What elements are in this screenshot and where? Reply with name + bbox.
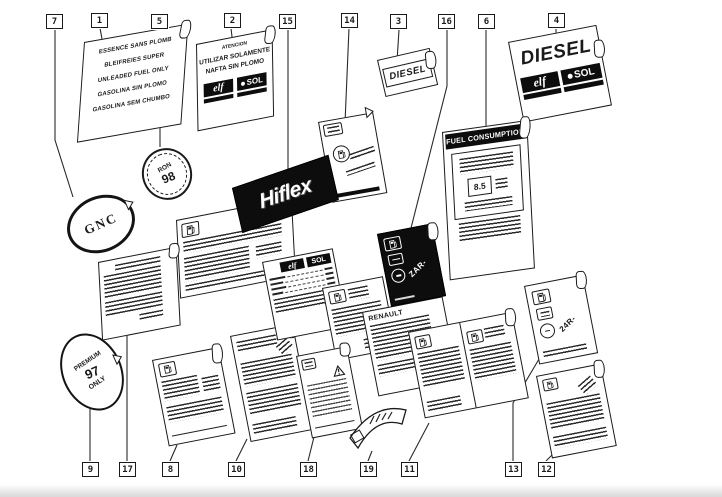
code-text-lines xyxy=(348,285,370,301)
callout-4: 4 xyxy=(548,13,565,28)
text-lines xyxy=(417,346,465,387)
fuel-pump-icon xyxy=(470,331,480,342)
text-lines xyxy=(346,162,376,176)
callout-3: 3 xyxy=(390,14,407,29)
code-text-lines xyxy=(139,309,163,320)
code-text-lines xyxy=(578,376,598,396)
fuel-pump-box xyxy=(542,377,559,392)
page-curl-decoration xyxy=(211,343,223,364)
warning-triangle-icon xyxy=(332,364,346,377)
fuel-pump-icon xyxy=(333,291,343,302)
text-lines xyxy=(546,393,604,429)
label-curved-ribbon xyxy=(344,398,410,452)
corner-flag-decoration xyxy=(364,105,375,118)
footer-micro-text xyxy=(395,295,415,301)
page-curl-decoration xyxy=(593,39,605,58)
label-fuel-consumption: FUEL CONSUMPTION 8.5 xyxy=(442,120,535,280)
text-lines xyxy=(495,177,507,189)
fuel-pump-box xyxy=(414,334,432,350)
callout-19: 19 xyxy=(360,462,377,477)
sol-logo-text: SOL xyxy=(247,75,263,87)
text-lines xyxy=(240,354,296,387)
fuel-pump-icon xyxy=(418,336,428,347)
text-lines xyxy=(427,395,462,411)
text-lines xyxy=(465,196,513,212)
fuel-pump-box xyxy=(466,329,484,345)
text-lines xyxy=(327,126,340,134)
round-marker xyxy=(390,267,406,283)
zar-code: ZAR- xyxy=(407,258,428,279)
text-lines xyxy=(540,310,550,317)
callout-11: 11 xyxy=(401,462,418,477)
callout-9: 9 xyxy=(82,462,99,477)
text-lines xyxy=(304,361,313,367)
fuel-pump-box xyxy=(181,221,199,239)
fuel-pump-icon xyxy=(388,238,398,249)
fuel-pump-icon xyxy=(186,223,195,236)
callout-10: 10 xyxy=(228,462,245,477)
fuel-labels-diagram: 7 1 5 2 15 14 3 16 6 4 9 17 8 10 18 19 1… xyxy=(0,0,722,497)
callout-18: 18 xyxy=(300,462,317,477)
text-lines xyxy=(459,215,521,242)
text-lines xyxy=(469,342,516,381)
hiflex-text: Hiflex xyxy=(257,173,314,214)
text-lines xyxy=(166,396,224,422)
fuel-pump-box xyxy=(328,289,347,305)
callout-17: 17 xyxy=(119,462,136,477)
text-lines xyxy=(545,330,550,332)
fuel-pump-box xyxy=(531,288,551,305)
octane-box xyxy=(536,306,554,321)
elf-logo: elf xyxy=(279,258,304,272)
page-curl-decoration xyxy=(575,271,587,290)
code-24r: 24R- xyxy=(558,314,578,334)
callout-16: 16 xyxy=(438,14,455,29)
fuel-pump-icon xyxy=(546,379,555,389)
sol-drop-icon xyxy=(567,73,573,79)
label-notice-fine-print xyxy=(98,247,181,341)
mini-logo-box xyxy=(323,122,344,137)
mini-logo-box xyxy=(301,357,317,370)
callout-13: 13 xyxy=(505,462,522,477)
fuel-pump-icon xyxy=(163,364,173,375)
sol-drop-icon xyxy=(241,81,245,86)
text-lines xyxy=(349,146,376,160)
text-lines xyxy=(161,375,200,402)
round-marker xyxy=(539,322,557,340)
page-curl-decoration xyxy=(339,342,351,357)
text-lines xyxy=(459,151,513,175)
callout-8: 8 xyxy=(162,462,179,477)
label-diesel-large: DIESEL elf SOL xyxy=(508,25,612,123)
page-curl-decoration xyxy=(593,360,605,379)
text-lines xyxy=(396,274,401,276)
curved-ribbon-shape xyxy=(344,398,410,452)
sol-logo-text: SOL xyxy=(573,66,595,81)
sol-logo: SOL xyxy=(306,253,331,267)
fuel-pump-box xyxy=(383,236,402,252)
text-lines xyxy=(246,383,301,415)
octane-box xyxy=(387,253,404,267)
text-lines xyxy=(553,427,608,449)
text-lines xyxy=(236,334,277,351)
text-lines xyxy=(252,416,297,434)
consumption-value: 8.5 xyxy=(467,176,492,197)
text-lines xyxy=(172,424,227,436)
code-text-lines xyxy=(256,241,282,258)
code-text-lines xyxy=(201,375,220,392)
callout-5: 5 xyxy=(151,14,168,29)
text-lines xyxy=(543,343,587,357)
text-lines xyxy=(392,258,400,261)
callout-7: 7 xyxy=(46,14,63,29)
fuel-pump-box xyxy=(158,361,177,378)
code-text-lines xyxy=(484,325,506,339)
callout-6: 6 xyxy=(478,14,495,29)
fuel-pump-icon xyxy=(337,148,347,159)
callout-14: 14 xyxy=(341,13,358,28)
callout-1: 1 xyxy=(91,13,108,28)
label-unleaded-multilanguage: ESSENCE SANS PLOMB BLEIFREIES SUPER UNLE… xyxy=(77,24,188,143)
gnc-text: GNC xyxy=(82,210,120,239)
callout-2: 2 xyxy=(224,13,241,28)
callout-15: 15 xyxy=(279,14,296,29)
label-two-panel-band xyxy=(408,312,529,419)
fuel-pump-icon xyxy=(536,291,547,304)
page-curl-decoration xyxy=(427,222,439,241)
label-nafta-sin-plomo: ATENCION UTILIZAR SOLAMENTE NAFTA SIN PL… xyxy=(196,29,274,131)
callout-12: 12 xyxy=(538,462,555,477)
